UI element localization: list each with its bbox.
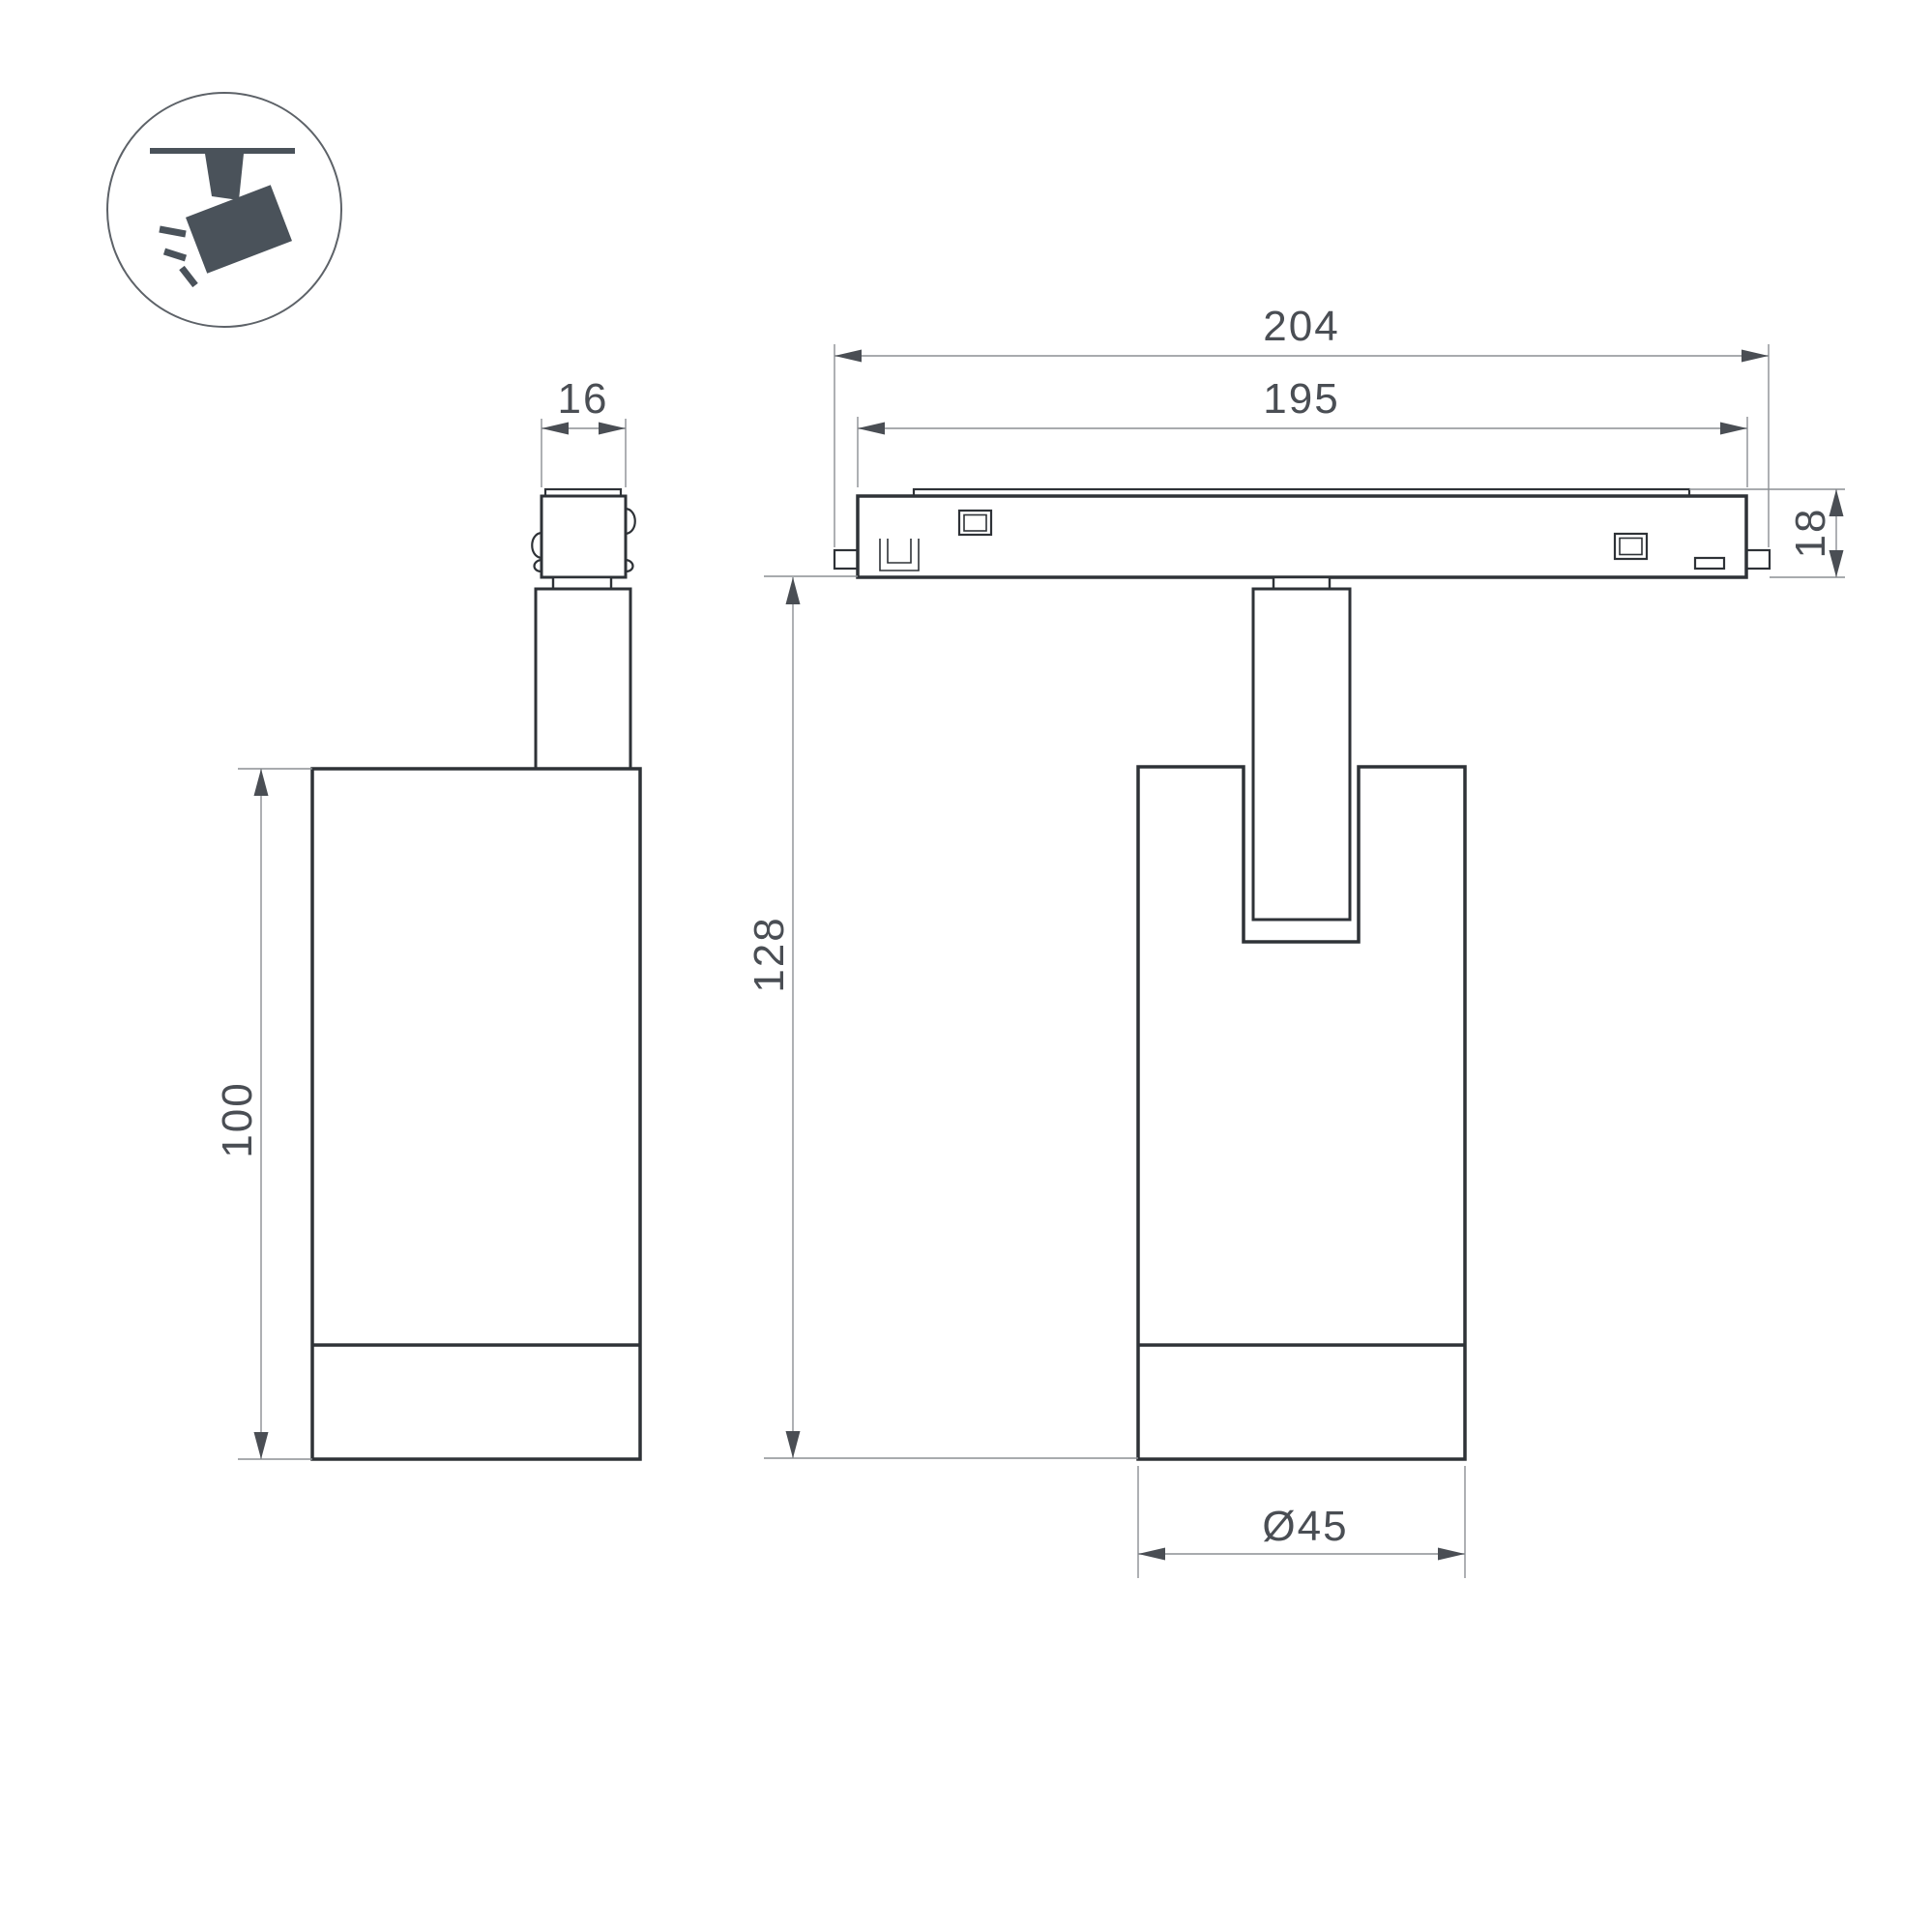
dim-adapter-width: 16 bbox=[542, 375, 626, 487]
dim-track-body: 195 bbox=[858, 375, 1747, 487]
dim-hang-height: 128 bbox=[746, 576, 1138, 1458]
icon-lamp-body bbox=[186, 185, 292, 274]
side-adapter-body bbox=[542, 496, 626, 577]
front-view: 204 195 18 bbox=[746, 303, 1845, 1578]
front-stem bbox=[1253, 589, 1350, 920]
dim-45-label: Ø45 bbox=[1262, 1503, 1348, 1550]
dim-195-arrow-right bbox=[1720, 423, 1747, 435]
dim-18-label: 18 bbox=[1787, 508, 1834, 559]
dim-16-arrow-left bbox=[542, 423, 569, 435]
dim-195-arrow-left bbox=[858, 423, 885, 435]
dim-16-arrow-right bbox=[599, 423, 626, 435]
dim-100-arrow-bottom bbox=[254, 1432, 269, 1459]
dim-128-label: 128 bbox=[746, 916, 793, 992]
track-spotlight-icon bbox=[107, 93, 341, 327]
dim-204-arrow-left bbox=[834, 350, 862, 363]
dim-128-arrow-bottom bbox=[786, 1431, 801, 1458]
dim-16-label: 16 bbox=[558, 375, 609, 423]
icon-stem bbox=[205, 154, 244, 200]
dim-204-label: 204 bbox=[1263, 303, 1339, 350]
side-stem bbox=[536, 589, 630, 769]
dim-45-arrow-right bbox=[1438, 1548, 1465, 1561]
dim-spot-diameter: Ø45 bbox=[1138, 1466, 1465, 1578]
side-view: 16 100 bbox=[214, 375, 640, 1459]
dim-128-arrow-top bbox=[786, 577, 801, 604]
track-right-tab bbox=[1746, 550, 1770, 569]
dim-body-height: 100 bbox=[214, 769, 312, 1459]
dim-45-arrow-left bbox=[1138, 1548, 1165, 1561]
dim-100-arrow-top bbox=[254, 769, 269, 796]
icon-light-rays bbox=[160, 229, 195, 285]
dim-128-extension-lines bbox=[764, 576, 1138, 1458]
track-body bbox=[858, 496, 1746, 577]
drawing-page: 16 100 204 bbox=[0, 0, 1932, 1932]
dim-195-label: 195 bbox=[1263, 375, 1339, 423]
front-neck bbox=[1273, 577, 1330, 589]
side-neck bbox=[553, 577, 611, 589]
dim-204-arrow-right bbox=[1742, 350, 1769, 363]
track-left-tab bbox=[834, 550, 858, 569]
dim-100-label: 100 bbox=[214, 1081, 261, 1157]
dim-195-extension-lines bbox=[858, 417, 1747, 487]
side-lamp-body bbox=[312, 769, 640, 1459]
technical-drawing: 16 100 204 bbox=[0, 0, 1932, 1932]
icon-ceiling-bar bbox=[150, 148, 295, 154]
